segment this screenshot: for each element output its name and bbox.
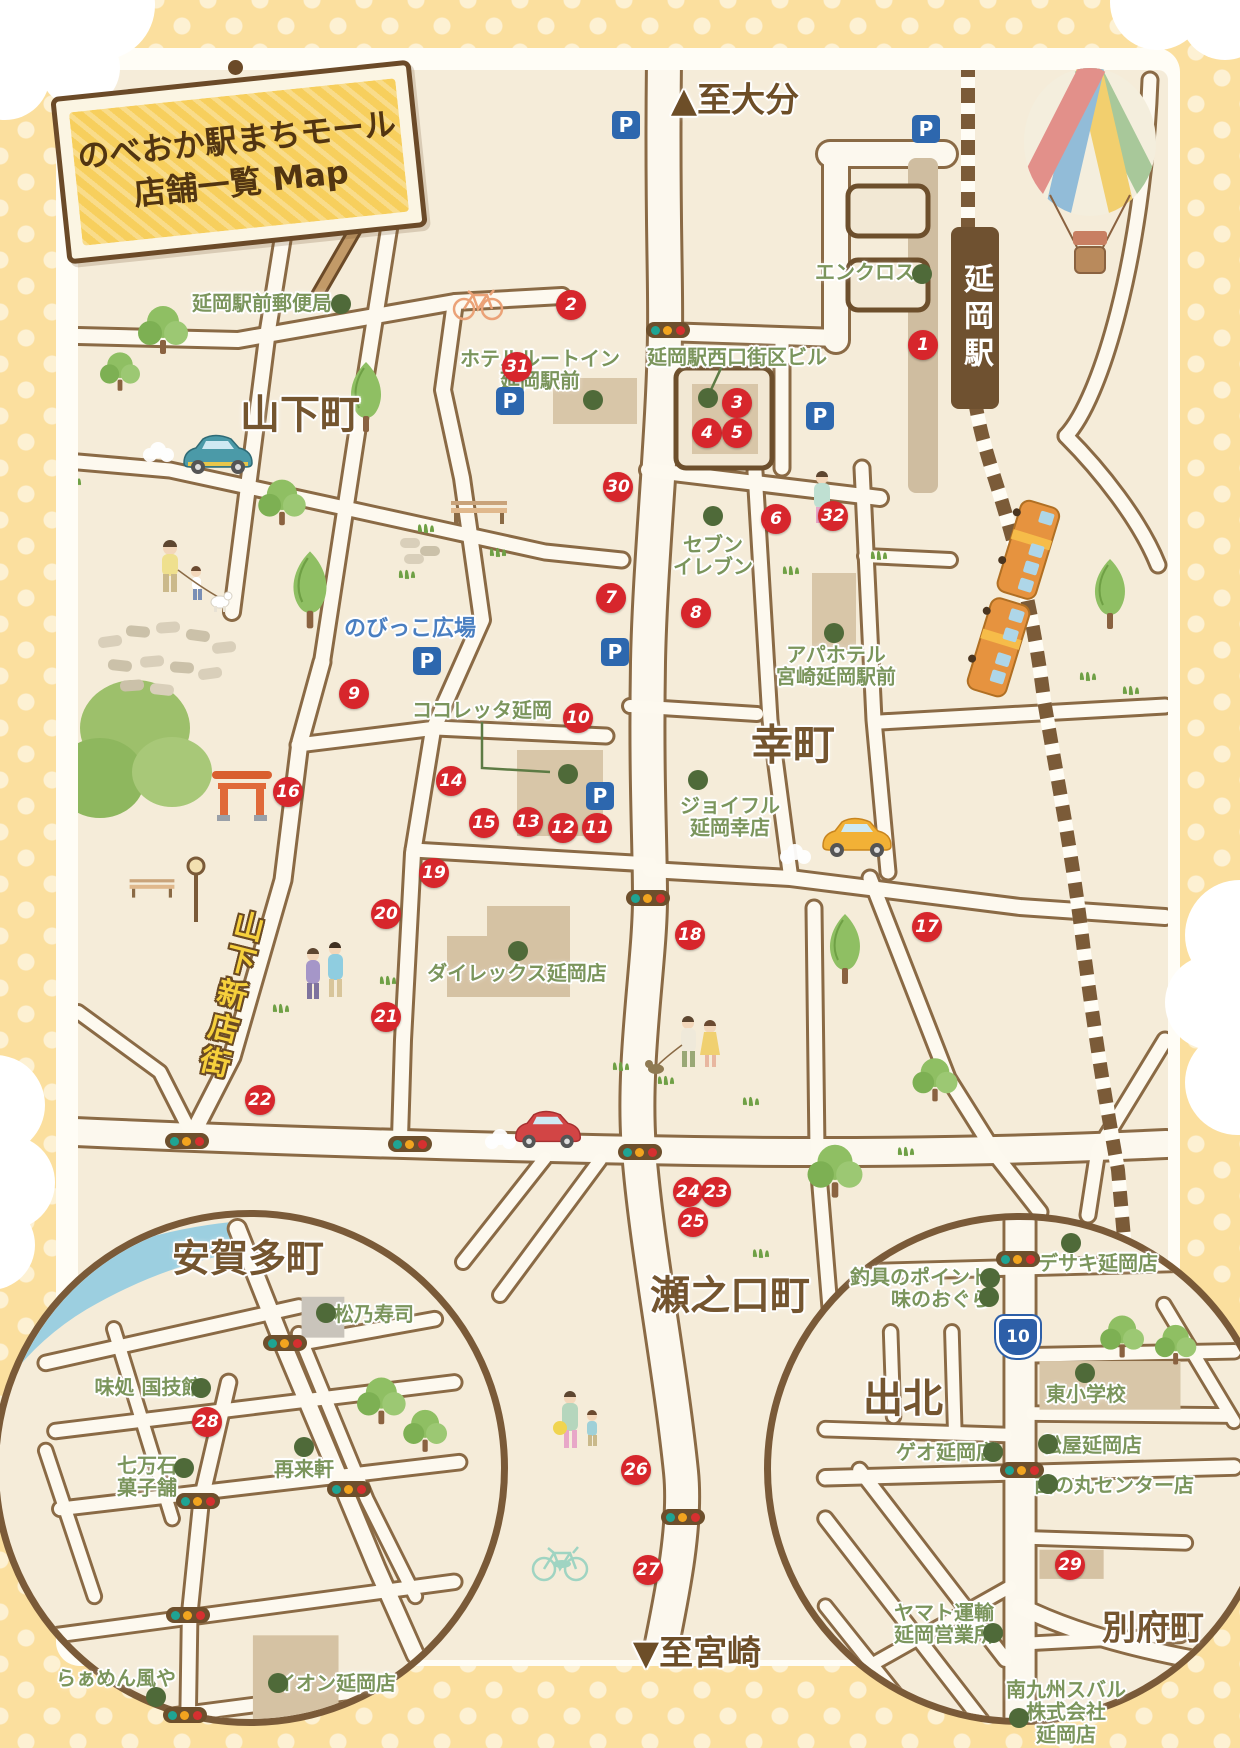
place-dot-4: [703, 506, 723, 526]
traffic-light-icon-10: [163, 1707, 207, 1723]
parking-icon-0: P: [612, 111, 640, 139]
store-marker-26[interactable]: 26: [621, 1455, 651, 1485]
store-marker-1[interactable]: 1: [908, 330, 938, 360]
store-marker-3[interactable]: 3: [722, 388, 752, 418]
place-label-11: 味処 国技館: [95, 1376, 202, 1398]
store-marker-11[interactable]: 11: [582, 813, 612, 843]
place-dot-14: [146, 1687, 166, 1707]
traffic-light-icon-0: [646, 322, 690, 338]
parking-icon-6: P: [586, 782, 614, 810]
district-label-senokuchi: 瀬之口町: [650, 1263, 810, 1321]
place-dot-17: [979, 1287, 999, 1307]
place-label-22: 西の丸センター店: [1034, 1474, 1194, 1496]
place-label-23: ヤマト運輸延岡営業所: [894, 1602, 994, 1647]
store-marker-9[interactable]: 9: [339, 679, 369, 709]
store-marker-17[interactable]: 17: [912, 912, 942, 942]
place-label-16: 釣具のポイント: [850, 1266, 990, 1288]
place-label-2: ホテルルートイン延岡駅前: [460, 348, 620, 393]
store-marker-16[interactable]: 16: [273, 777, 303, 807]
traffic-light-icon-12: [1000, 1462, 1044, 1478]
store-marker-27[interactable]: 27: [633, 1555, 663, 1585]
place-label-1: エンクロス: [815, 261, 915, 283]
place-dot-0: [331, 294, 351, 314]
place-label-10: 松乃寿司: [334, 1303, 414, 1325]
traffic-light-icon-6: [263, 1335, 307, 1351]
place-label-12: 七万石菓子舗: [117, 1455, 177, 1500]
traffic-light-icon-11: [996, 1251, 1040, 1267]
place-dot-19: [1075, 1363, 1095, 1383]
store-marker-28[interactable]: 28: [192, 1407, 222, 1437]
place-dot-5: [824, 623, 844, 643]
parking-icon-2: P: [496, 387, 524, 415]
traffic-light-icon-3: [388, 1136, 432, 1152]
place-label-18: デサキ延岡店: [1038, 1252, 1158, 1274]
parking-icon-4: P: [413, 647, 441, 675]
store-marker-32[interactable]: 32: [818, 501, 848, 531]
place-dot-13: [294, 1437, 314, 1457]
parking-icon-1: P: [912, 115, 940, 143]
district-label-idekita: 出北: [863, 1366, 943, 1424]
place-dot-21: [1038, 1434, 1058, 1454]
store-marker-14[interactable]: 14: [436, 766, 466, 796]
place-dot-9: [508, 941, 528, 961]
store-marker-2[interactable]: 2: [556, 290, 586, 320]
place-label-7: ココレッタ延岡: [412, 699, 552, 721]
place-dot-10: [316, 1303, 336, 1323]
station-sign: 延岡駅: [951, 227, 999, 409]
place-dot-22: [1038, 1474, 1058, 1494]
store-marker-7[interactable]: 7: [596, 583, 626, 613]
store-marker-10[interactable]: 10: [563, 703, 593, 733]
place-label-5: アパホテル宮崎延岡駅前: [776, 644, 896, 689]
sign-nail-icon: [228, 60, 243, 75]
map-title: のべおか駅まちモール 店舗一覧 Map: [69, 78, 409, 246]
place-label-19: 東小学校: [1046, 1383, 1126, 1405]
place-dot-23: [983, 1623, 1003, 1643]
store-marker-19[interactable]: 19: [419, 858, 449, 888]
place-label-20: ゲオ延岡店: [896, 1441, 996, 1463]
street-sign-yamashita-shintengai: 山下新店街: [185, 905, 270, 1085]
place-label-8: ジョイフル延岡幸店: [680, 795, 780, 840]
place-label-14: らぁめん風や: [56, 1667, 176, 1689]
store-marker-31[interactable]: 31: [502, 352, 532, 382]
district-label-saiwai: 幸町: [751, 712, 835, 773]
parking-icon-5: P: [601, 638, 629, 666]
store-marker-25[interactable]: 25: [678, 1207, 708, 1237]
route-10-shield: 10: [996, 1316, 1040, 1358]
place-label-9: ダイレックス延岡店: [427, 962, 606, 984]
place-dot-15: [268, 1673, 288, 1693]
place-dot-20: [983, 1442, 1003, 1462]
traffic-light-icon-8: [327, 1481, 371, 1497]
district-label-agata: 安賀多町: [172, 1228, 324, 1283]
store-marker-13[interactable]: 13: [513, 807, 543, 837]
direction-to-miyazaki: ▼至宮崎: [633, 1626, 761, 1675]
store-marker-24[interactable]: 24: [673, 1177, 703, 1207]
place-dot-11: [191, 1378, 211, 1398]
place-label-0: 延岡駅前郵便局: [192, 292, 332, 314]
place-dot-1: [912, 264, 932, 284]
store-marker-5[interactable]: 5: [722, 418, 752, 448]
store-marker-12[interactable]: 12: [548, 813, 578, 843]
place-dot-24: [1009, 1708, 1029, 1728]
place-dot-8: [688, 770, 708, 790]
place-dot-7: [558, 764, 578, 784]
store-marker-22[interactable]: 22: [245, 1085, 275, 1115]
place-dot-3: [698, 388, 718, 408]
store-marker-20[interactable]: 20: [371, 899, 401, 929]
store-marker-23[interactable]: 23: [701, 1177, 731, 1207]
map-overlay: のべおか駅まちモール 店舗一覧 Map ▲至大分 ▼至宮崎 延岡駅 山下新店街 …: [0, 0, 1240, 1748]
direction-to-oita: ▲至大分: [671, 73, 799, 122]
parking-icon-3: P: [806, 402, 834, 430]
store-marker-6[interactable]: 6: [761, 504, 791, 534]
place-dot-18: [1061, 1233, 1081, 1253]
place-label-17: 味のおぐら: [891, 1288, 991, 1310]
store-marker-21[interactable]: 21: [371, 1002, 401, 1032]
place-label-6: のびっこ広場: [344, 618, 476, 643]
district-label-yamashita: 山下町: [240, 382, 360, 440]
store-marker-29[interactable]: 29: [1055, 1550, 1085, 1580]
map-title-sign: のべおか駅まちモール 店舗一覧 Map: [50, 60, 428, 265]
store-marker-18[interactable]: 18: [675, 920, 705, 950]
traffic-light-icon-5: [661, 1509, 705, 1525]
traffic-light-icon-1: [626, 890, 670, 906]
traffic-light-icon-7: [176, 1493, 220, 1509]
place-dot-2: [583, 390, 603, 410]
place-dot-12: [174, 1458, 194, 1478]
store-marker-15[interactable]: 15: [469, 808, 499, 838]
traffic-light-icon-2: [165, 1133, 209, 1149]
store-marker-4[interactable]: 4: [692, 418, 722, 448]
store-marker-30[interactable]: 30: [603, 472, 633, 502]
traffic-light-icon-4: [618, 1144, 662, 1160]
traffic-light-icon-9: [166, 1607, 210, 1623]
place-label-4: セブンイレブン: [673, 534, 753, 579]
place-label-3: 延岡駅西口街区ビル: [647, 346, 827, 368]
place-label-15: イオン延岡店: [276, 1672, 396, 1694]
district-label-beppu: 別府町: [1102, 1601, 1204, 1650]
place-dot-16: [980, 1268, 1000, 1288]
place-label-13: 再来軒: [274, 1458, 334, 1480]
store-marker-8[interactable]: 8: [681, 598, 711, 628]
map-canvas: のべおか駅まちモール 店舗一覧 Map ▲至大分 ▼至宮崎 延岡駅 山下新店街 …: [0, 0, 1240, 1748]
